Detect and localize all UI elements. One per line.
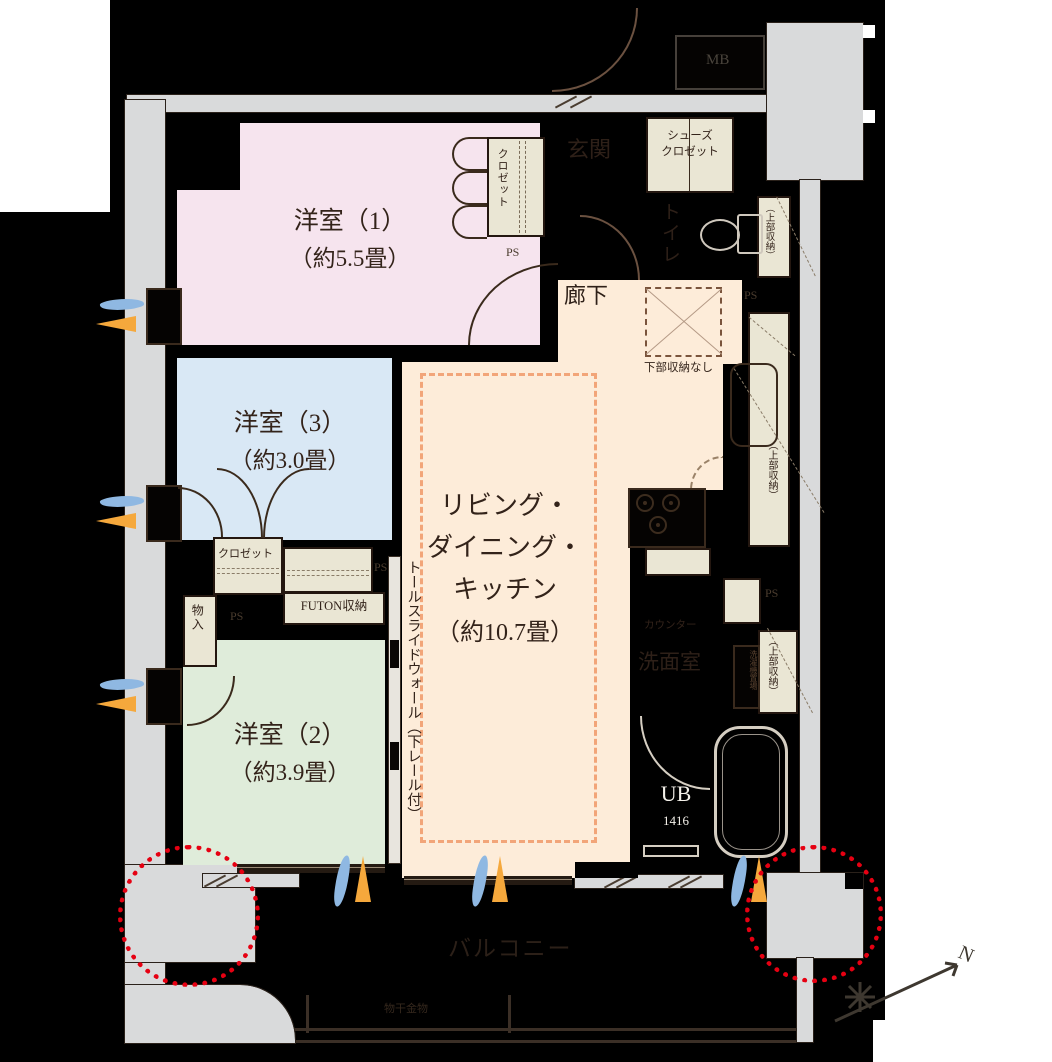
- ldk-label-line2: ダイニング・: [415, 534, 595, 563]
- shoes-closet-label: クロゼット: [648, 146, 732, 159]
- ldk-dashed-boundary: [420, 373, 597, 843]
- closet-rail: [217, 573, 279, 574]
- airflow-orange-icon: [96, 696, 136, 712]
- window: [146, 288, 182, 345]
- senmen-label: 洗面室: [638, 651, 701, 674]
- toilet-bowl: [700, 219, 740, 251]
- airflow-orange-icon: [96, 513, 136, 529]
- monohoshi-label: 物干金物: [384, 1003, 428, 1015]
- page-margin-right: [885, 0, 1052, 1062]
- pillar-tab: [863, 25, 875, 38]
- balcony-railing: [292, 1040, 808, 1043]
- closet1-label: クロゼット: [496, 148, 508, 230]
- closet1-folding-door: [452, 171, 487, 205]
- washroom-upper-storage-box: [758, 630, 798, 714]
- compass: N: [815, 935, 985, 1030]
- kitchen-upper-storage-label: （上部収納）: [766, 440, 777, 516]
- compass-n-label: N: [955, 941, 977, 967]
- ldk-label-line1: リビング・: [415, 492, 595, 521]
- stove-burner: [636, 494, 654, 512]
- counter-label: カウンター: [644, 620, 697, 632]
- bathtub-inner: [722, 734, 780, 850]
- airflow-orange-icon: [355, 856, 371, 902]
- ldk-label-line3: キッチン: [415, 576, 595, 605]
- tall-slide-wall-label: トールスライドウォール（下レール付）: [404, 560, 420, 890]
- toilet-tank: [737, 214, 763, 254]
- shoes-closet-label: シューズ: [648, 130, 732, 143]
- toilet-door-arc: [580, 215, 640, 280]
- outer-walkway-top: [127, 95, 767, 112]
- closet-western3: [213, 537, 283, 595]
- page-corner-top-left: [0, 0, 110, 212]
- room-western3-size: （約3.0畳）: [195, 448, 385, 473]
- room-western2-label: 洋室（2）: [195, 722, 385, 750]
- room-western3-label: 洋室（3）: [195, 410, 385, 438]
- balcony-window: [404, 876, 572, 885]
- tall-slide-wall: [388, 556, 401, 864]
- kitchen-counter: [645, 548, 711, 576]
- railing-post: [306, 995, 309, 1033]
- ps-duct-box: [723, 578, 761, 624]
- room-western2-floor: [183, 640, 385, 865]
- closet1-folding-door: [452, 137, 487, 171]
- toilet-label: トイレ: [658, 202, 679, 286]
- rouka-label: 廊下: [564, 284, 608, 308]
- window: [146, 485, 182, 542]
- unit-bath-size: 1416: [650, 814, 702, 828]
- window: [146, 668, 182, 725]
- ps-label: PS: [374, 561, 387, 574]
- monoire-label: 物入: [190, 604, 203, 660]
- floor-plan: N 洋室（1） （約5.5畳） 洋室（3） （約3.0畳） 洋室（2） （約3.…: [0, 0, 1052, 1062]
- stove-burner: [649, 516, 667, 534]
- stove-burner: [662, 494, 680, 512]
- closet3-label: クロゼット: [218, 548, 273, 560]
- tall-slide-wall-post: [390, 640, 399, 668]
- unit-bath-label: UB: [650, 782, 702, 806]
- tall-slide-wall-post: [390, 742, 399, 770]
- closet-rail: [287, 575, 369, 576]
- pillar-tab: [863, 110, 875, 123]
- pillar-top-right: [767, 23, 863, 180]
- closet-rail: [525, 141, 526, 233]
- kitchen-sink: [730, 363, 778, 447]
- closet-rail: [519, 141, 520, 233]
- ps-label: PS: [506, 246, 519, 259]
- outer-wall-right: [800, 180, 820, 873]
- entrance-door-arc: [552, 8, 638, 92]
- closet-rail: [217, 568, 279, 569]
- lower-storage-none-label: 下部収納なし: [644, 362, 713, 375]
- meter-box-label: MB: [706, 52, 729, 69]
- washer-label: 洗濯機置場: [735, 650, 759, 704]
- wall-patch: [575, 862, 638, 878]
- ps-label: PS: [765, 587, 778, 600]
- room-western2-size: （約3.9畳）: [195, 760, 385, 785]
- outer-wall-foot: [125, 985, 295, 1043]
- ps-label: PS: [744, 289, 757, 302]
- airflow-orange-icon: [492, 856, 508, 902]
- ps-label: PS: [230, 610, 243, 623]
- room-western1-size: （約5.5畳）: [255, 246, 445, 271]
- bath-door-arc: [640, 716, 710, 790]
- pillar-highlight-circle: [118, 845, 260, 987]
- balcony-railing: [292, 1028, 808, 1031]
- genkan-label: 玄関: [567, 138, 611, 162]
- railing-post: [508, 995, 511, 1033]
- bath-step: [643, 845, 699, 857]
- room-western1-floor: [177, 190, 240, 345]
- closet-rail: [287, 570, 369, 571]
- closet1-folding-door: [452, 205, 487, 239]
- balcony-label: バルコニー: [448, 936, 573, 961]
- washroom-upper-storage-label: （上部収納）: [766, 636, 777, 712]
- toilet-upper-storage-label: （上部収納）: [763, 203, 773, 273]
- room-western1-label: 洋室（1）: [255, 208, 445, 236]
- airflow-orange-icon: [96, 316, 136, 332]
- futon-storage-label: FUTON収納: [285, 600, 383, 614]
- ldk-size: （約10.7畳）: [415, 620, 595, 646]
